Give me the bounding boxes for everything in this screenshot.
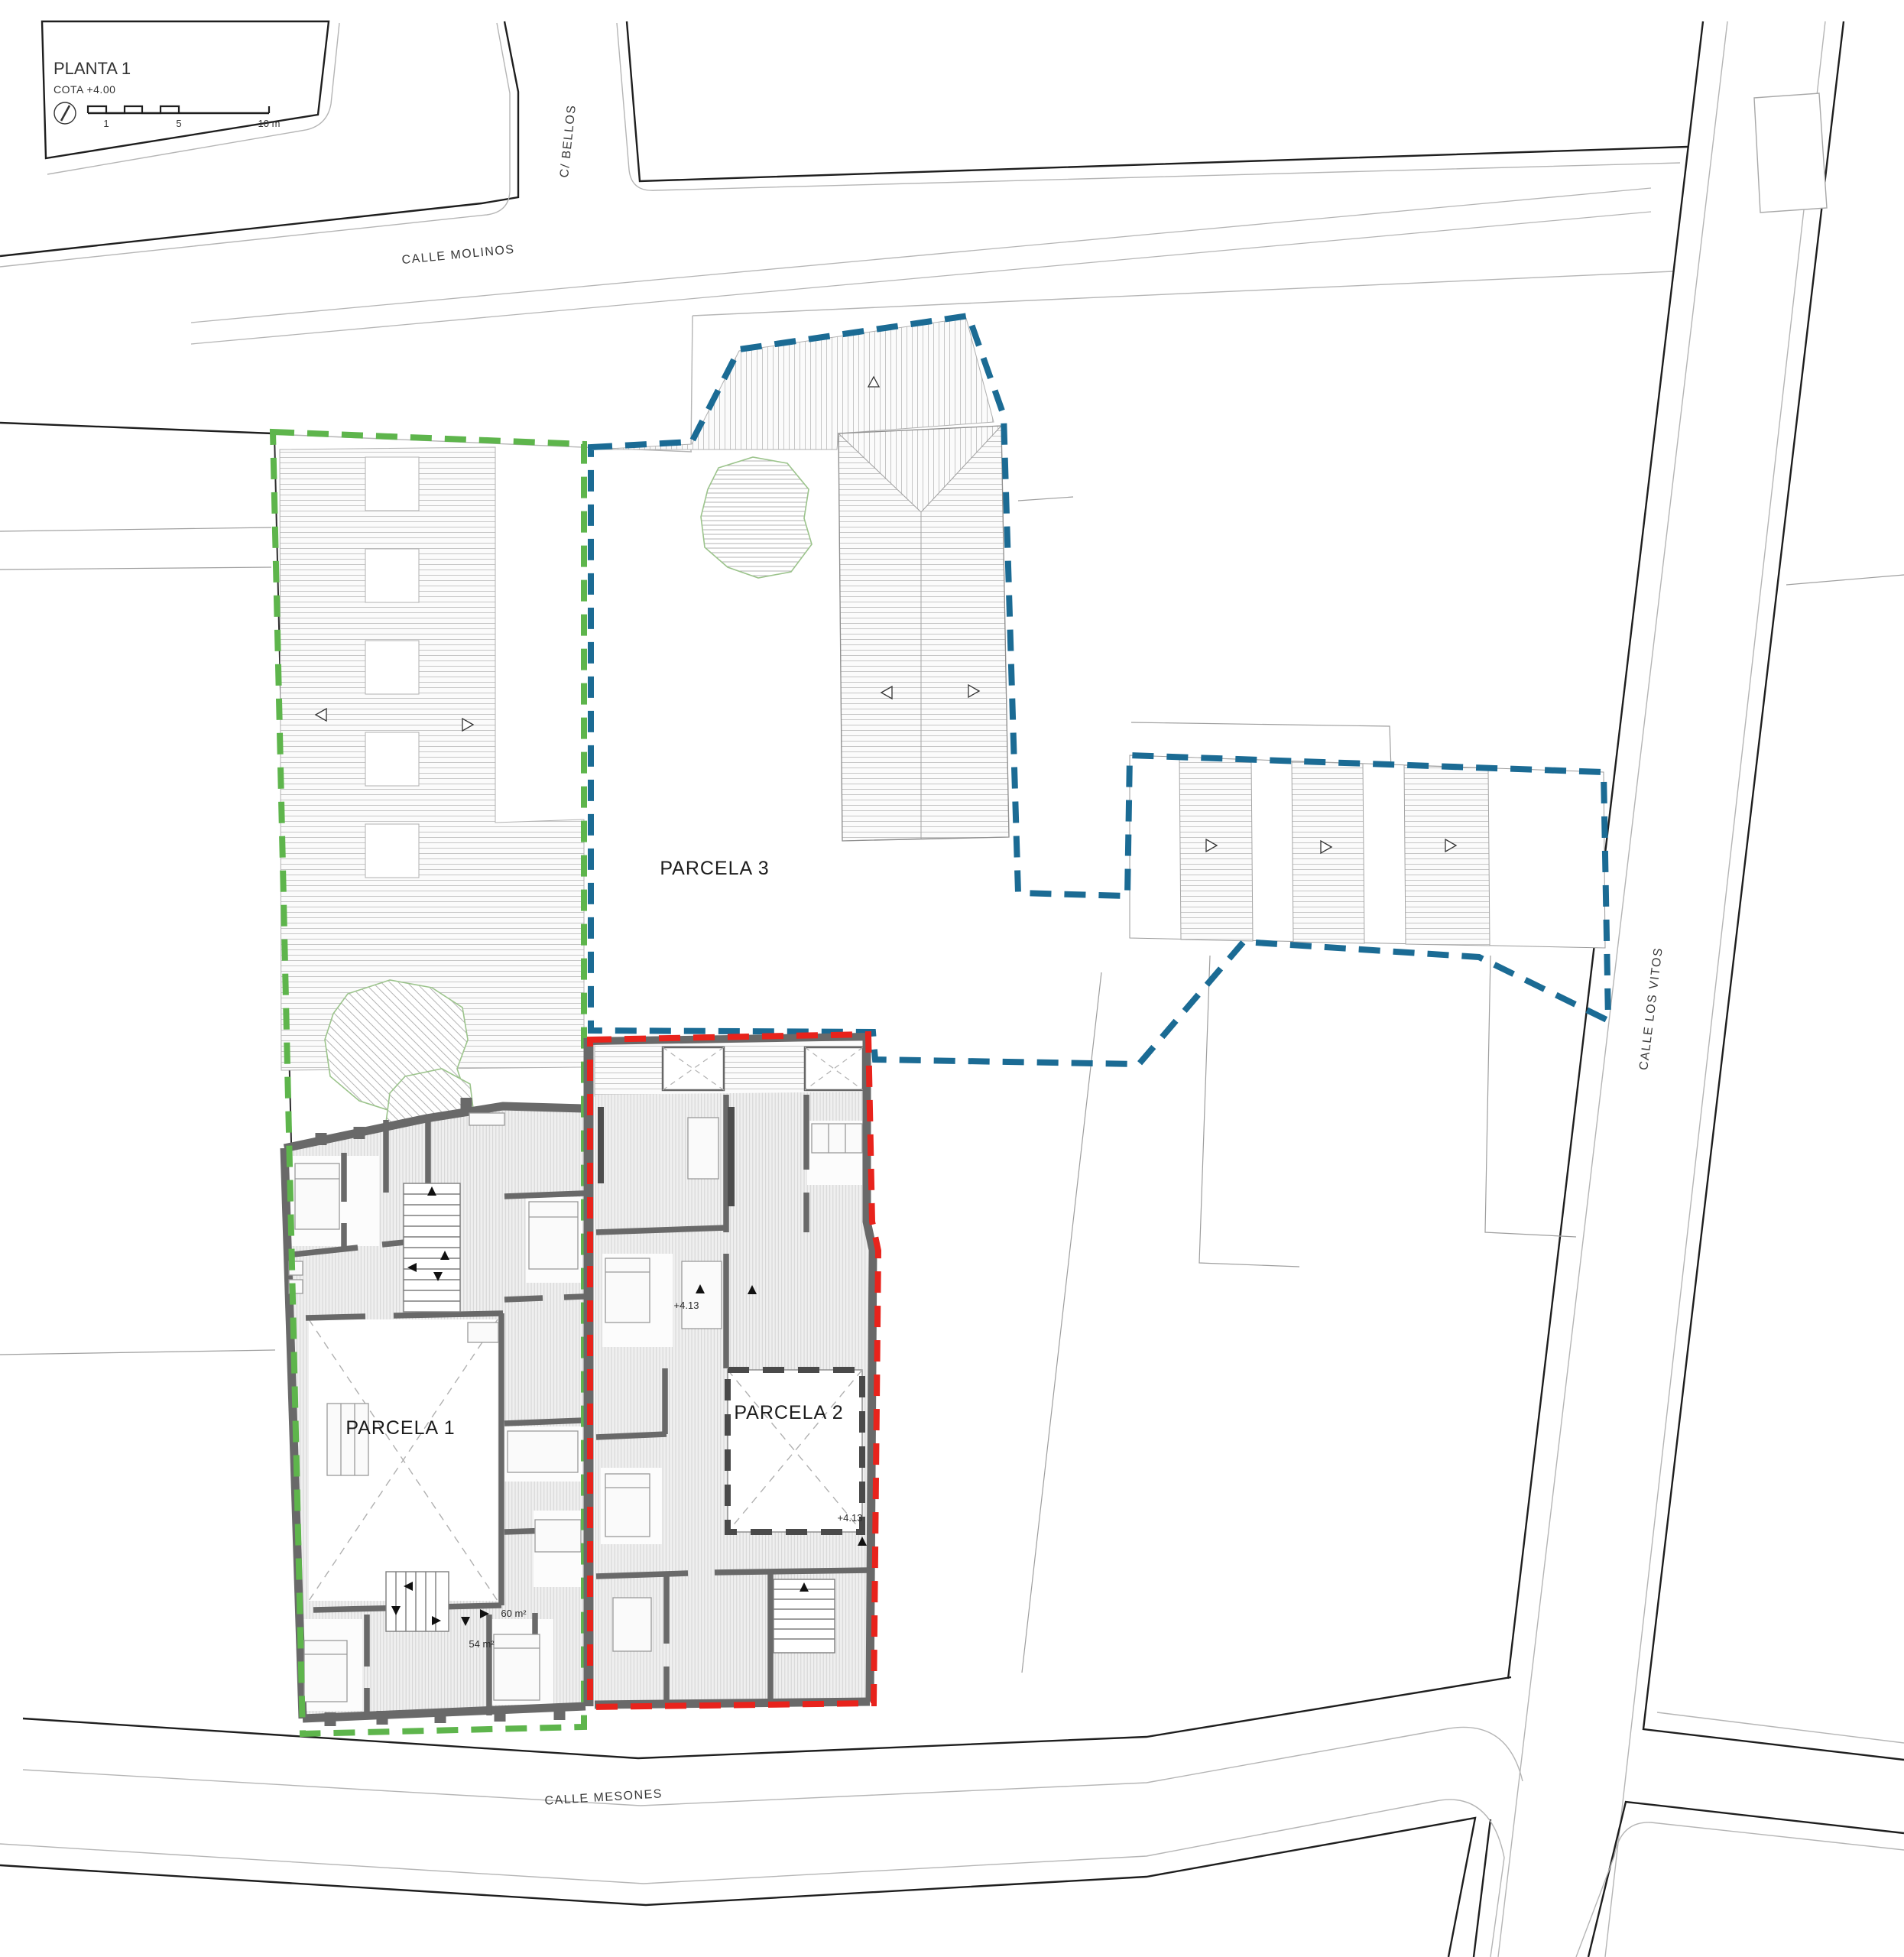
area-label-60: 60 m²: [501, 1608, 527, 1619]
street-label-vitos: CALLE LOS VITOS: [1637, 946, 1666, 1071]
level-mark-b: +4.13: [838, 1512, 863, 1524]
stair-parcela1-south: [386, 1572, 449, 1631]
parcela1-building: 60 m² 54 m²: [284, 1098, 585, 1726]
scale-tick-5: 5: [176, 118, 181, 129]
vitos-west-edge-s: [1474, 1819, 1490, 1957]
parcela3-label: PARCELA 3: [660, 858, 769, 879]
plan-cota: COTA +4.00: [54, 83, 115, 96]
parcela3: PARCELA 3: [591, 316, 1608, 1064]
central-block-top-east: [693, 271, 1673, 316]
parcela1-label: PARCELA 1: [345, 1417, 455, 1439]
parcela1: 60 m² 54 m² PARCELA 1: [273, 432, 585, 1734]
building-top-right: [1754, 93, 1827, 213]
mesones-east-curb: [1657, 1712, 1904, 1743]
site-plan-drawing: PARCELA 3: [0, 0, 1904, 1957]
scale-tick-10: 10 m: [258, 118, 281, 129]
bellos-east-edge: [627, 21, 1688, 181]
tree-parcela3: [701, 457, 812, 578]
vitos-east-edge: [1643, 21, 1904, 1760]
parcela1-roof: [280, 447, 584, 1070]
level-mark-a: +4.13: [674, 1300, 699, 1311]
central-block-step: [691, 316, 693, 452]
plan-title: PLANTA 1: [54, 59, 131, 78]
street-label-molinos: CALLE MOLINOS: [401, 243, 515, 267]
vitos-east-curb: [1605, 21, 1825, 1957]
parcela3-hip-building: [838, 426, 1009, 841]
parcela2-label: PARCELA 2: [734, 1402, 843, 1423]
stair-parcela1-main: [404, 1183, 460, 1312]
mesones-south-curb-east: [1576, 1822, 1904, 1957]
street-label-bellos: C/ BELLOS: [558, 104, 579, 178]
parcela2: +4.13 +4.13 PARCELA 2: [589, 1034, 878, 1707]
area-label-54: 54 m²: [469, 1638, 495, 1650]
mesones-south-block-west: [0, 1818, 1475, 1957]
central-block-top-west: [0, 423, 273, 433]
scale-tick-1: 1: [103, 118, 109, 129]
street-label-mesones: CALLE MESONES: [544, 1787, 663, 1807]
vitos-west-curb: [1498, 21, 1727, 1957]
parcela3-roof-bars: [1130, 755, 1605, 948]
mesones-north-curb: [23, 1727, 1523, 1806]
site-plan-page: PARCELA 3: [0, 0, 1904, 1957]
